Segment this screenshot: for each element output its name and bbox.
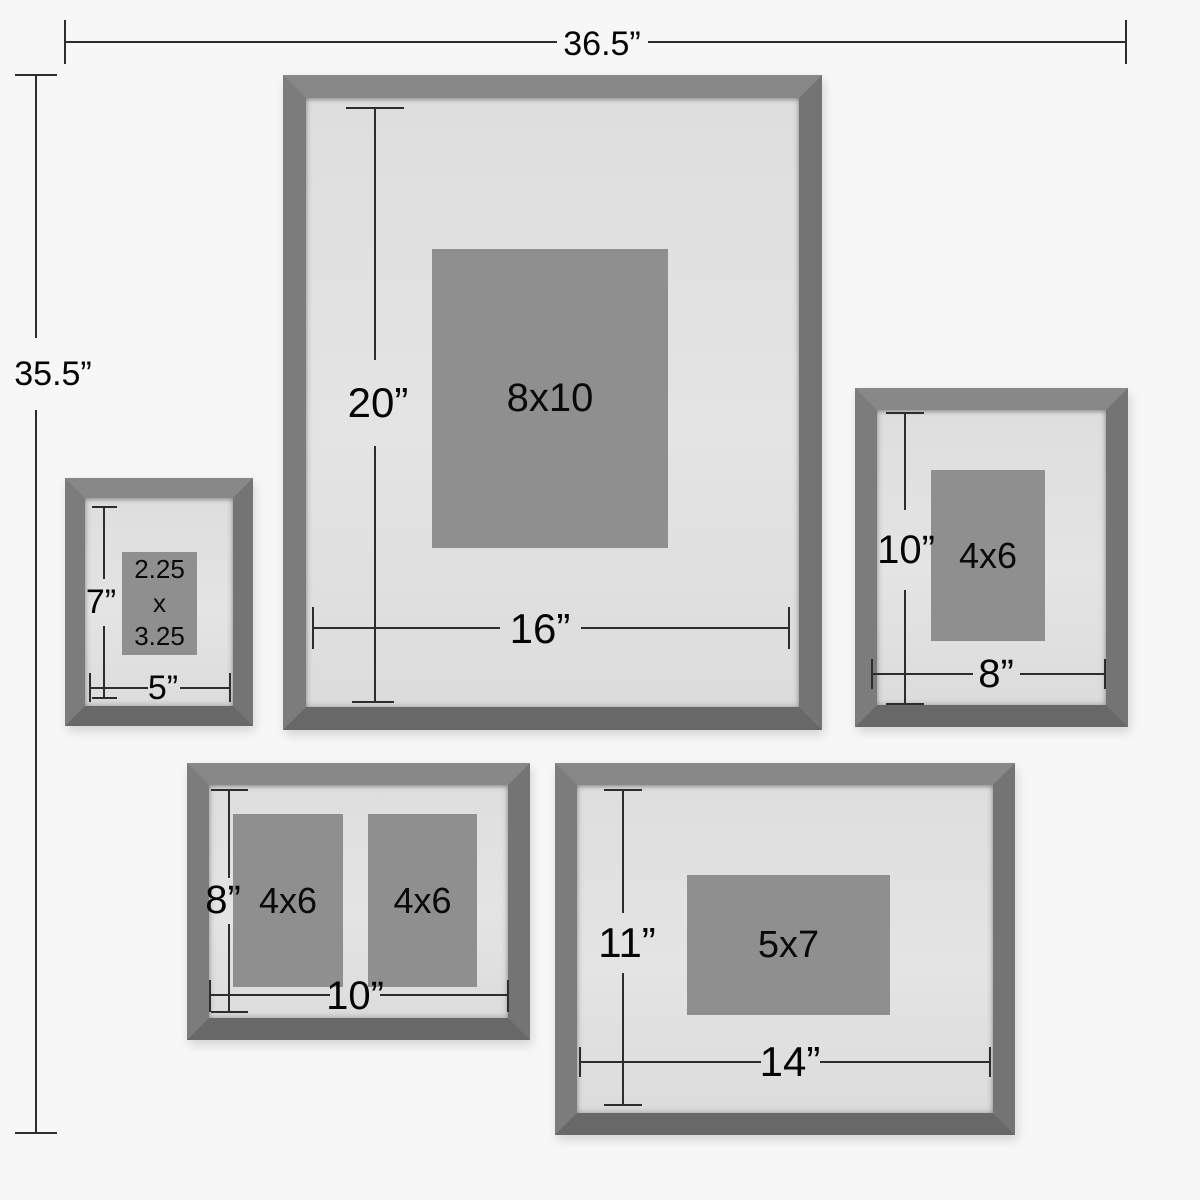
dimension-line-segment bbox=[904, 590, 906, 705]
dimension-line-segment bbox=[313, 627, 500, 629]
opening-size-label: 4x6 bbox=[393, 880, 451, 922]
dimension-line-segment bbox=[872, 673, 973, 675]
opening-size-label: 5x7 bbox=[758, 924, 819, 967]
photo-opening-8x10: 8x10 bbox=[432, 249, 668, 548]
dimension-line-segment bbox=[374, 446, 376, 703]
photo-opening-4x6-right: 4x6 bbox=[368, 814, 477, 987]
overall-width-label: 36.5” bbox=[563, 27, 641, 61]
dimension-line-segment bbox=[904, 413, 906, 510]
dimension-line-segment bbox=[580, 1061, 761, 1063]
dimension-tick bbox=[989, 1047, 991, 1077]
frame-set-dimension-diagram: 36.5” 35.5” 8x10 20” 16” 2.25 x 3.25 7” bbox=[0, 0, 1200, 1200]
dimension-line-segment bbox=[622, 790, 624, 913]
dimension-line-segment bbox=[622, 973, 624, 1105]
dimension-tick bbox=[229, 673, 231, 702]
frame2-width-label: 5” bbox=[148, 671, 178, 705]
dimension-line-segment bbox=[65, 41, 557, 43]
dimension-line-segment bbox=[228, 924, 230, 1012]
opening-size-label: 3.25 bbox=[134, 620, 185, 654]
dimension-tick bbox=[352, 701, 394, 703]
photo-opening-4x6-left: 4x6 bbox=[233, 814, 343, 987]
dimension-line-segment bbox=[380, 994, 508, 996]
dimension-tick bbox=[507, 980, 509, 1012]
dimension-line-segment bbox=[1020, 673, 1105, 675]
photo-opening-5x7: 5x7 bbox=[687, 875, 890, 1015]
dimension-tick bbox=[604, 1104, 642, 1106]
dimension-line-segment bbox=[180, 687, 230, 689]
dimension-tick bbox=[1104, 659, 1106, 689]
dimension-line-segment bbox=[648, 41, 1126, 43]
dimension-line-segment bbox=[581, 627, 789, 629]
dimension-tick bbox=[1125, 20, 1127, 64]
dimension-line-segment bbox=[103, 507, 105, 579]
frame1-width-label: 16” bbox=[510, 608, 571, 650]
dimension-tick bbox=[209, 980, 211, 1012]
dimension-line-segment bbox=[374, 108, 376, 360]
frame4-width-label: 10” bbox=[326, 976, 384, 1016]
dimension-tick bbox=[15, 1132, 57, 1134]
opening-size-label: 4x6 bbox=[259, 880, 317, 922]
dimension-line-segment bbox=[210, 994, 330, 996]
frame3-height-label: 10” bbox=[877, 530, 935, 570]
frame3-width-label: 8” bbox=[978, 654, 1014, 694]
frame5-height-label: 11” bbox=[598, 922, 656, 964]
dimension-line-segment bbox=[35, 410, 37, 1133]
dimension-tick bbox=[92, 697, 117, 699]
dimension-line-segment bbox=[90, 687, 148, 689]
overall-height-label: 35.5” bbox=[14, 357, 92, 391]
dimension-line-segment bbox=[35, 75, 37, 338]
dimension-line-segment bbox=[228, 790, 230, 878]
frame4-height-label: 8” bbox=[205, 880, 241, 920]
photo-opening-4x6: 4x6 bbox=[931, 470, 1045, 641]
frame2-height-label: 7” bbox=[86, 585, 116, 619]
photo-opening-2.25x3.25: 2.25 x 3.25 bbox=[122, 552, 197, 655]
opening-size-label: 2.25 bbox=[134, 553, 185, 587]
opening-size-label: 8x10 bbox=[507, 376, 594, 421]
opening-size-label: 4x6 bbox=[959, 535, 1017, 577]
opening-size-label: x bbox=[153, 587, 166, 621]
dimension-tick bbox=[788, 607, 790, 649]
frame1-height-label: 20” bbox=[348, 382, 409, 424]
frame5-width-label: 14” bbox=[760, 1041, 821, 1083]
dimension-tick bbox=[211, 1011, 248, 1013]
dimension-line-segment bbox=[820, 1061, 990, 1063]
dimension-tick bbox=[886, 703, 924, 705]
